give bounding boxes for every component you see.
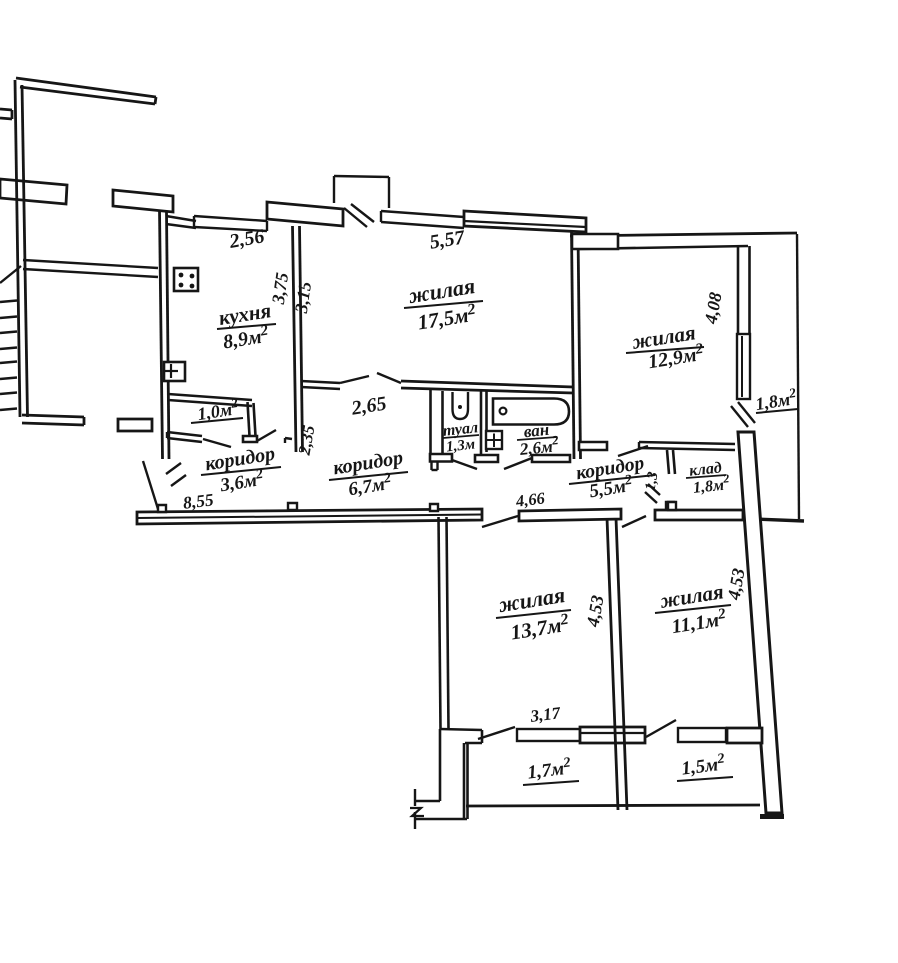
svg-text:4,53: 4,53 (723, 567, 748, 602)
svg-text:1,3м: 1,3м (445, 437, 476, 456)
svg-text:3,17: 3,17 (528, 703, 562, 726)
svg-text:1,5м2: 1,5м2 (680, 750, 727, 779)
svg-text:4,08: 4,08 (700, 291, 725, 326)
svg-text:жилая: жилая (658, 579, 726, 613)
svg-text:3,75: 3,75 (268, 271, 292, 306)
svg-text:8,55: 8,55 (182, 489, 215, 513)
svg-text:коридор: коридор (332, 447, 405, 480)
svg-text:5,57: 5,57 (428, 226, 467, 253)
svg-text:1,3: 1,3 (643, 470, 662, 492)
svg-text:2,35: 2,35 (294, 423, 318, 457)
svg-text:4,53: 4,53 (582, 594, 607, 629)
svg-text:4,66: 4,66 (514, 488, 547, 511)
svg-text:1,7м2: 1,7м2 (526, 754, 573, 783)
svg-text:2,65: 2,65 (349, 392, 388, 419)
